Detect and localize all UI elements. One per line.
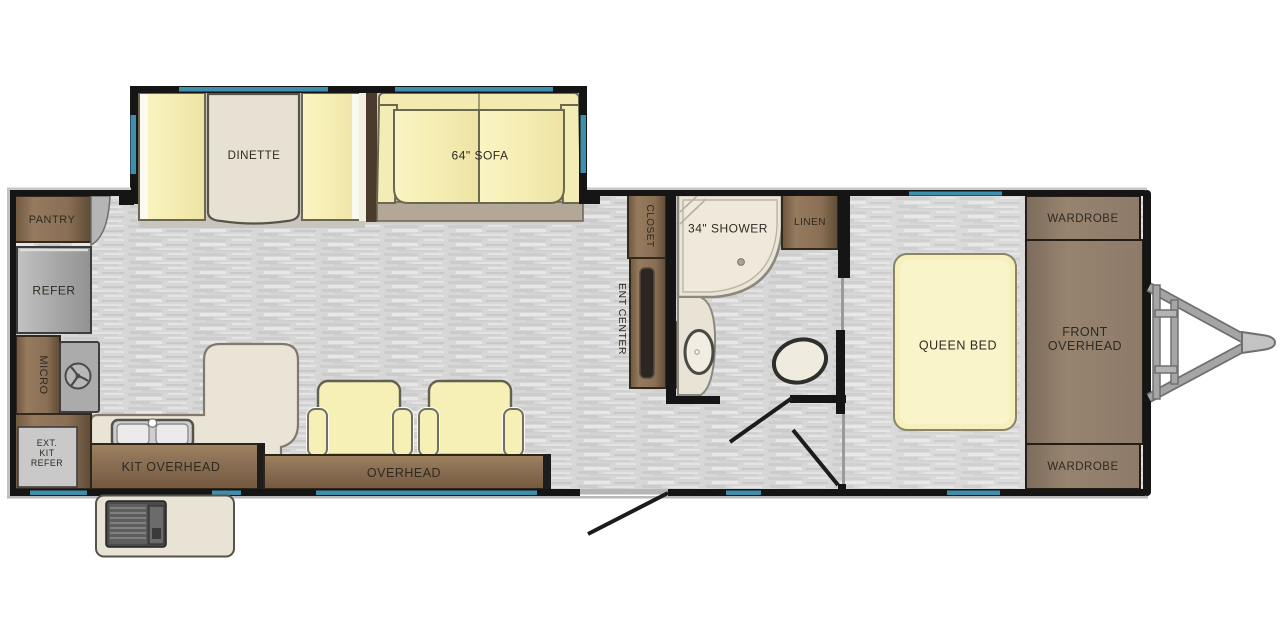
svg-text:34" SHOWER: 34" SHOWER [688, 222, 768, 236]
svg-text:DINETTE: DINETTE [228, 150, 281, 162]
svg-text:KIT: KIT [39, 448, 54, 458]
svg-text:WARDROBE: WARDROBE [1047, 461, 1118, 473]
svg-text:WARDROBE: WARDROBE [1047, 213, 1118, 225]
svg-text:MICRO: MICRO [37, 355, 49, 394]
svg-text:CLOSET: CLOSET [644, 204, 655, 247]
svg-text:KIT OVERHEAD: KIT OVERHEAD [122, 460, 221, 474]
svg-text:REFER: REFER [31, 458, 63, 468]
svg-text:REFER: REFER [32, 284, 75, 298]
svg-text:OVERHEAD: OVERHEAD [1048, 339, 1122, 353]
svg-text:EXT.: EXT. [37, 438, 58, 448]
svg-text:PANTRY: PANTRY [29, 214, 76, 226]
svg-text:ENT CENTER: ENT CENTER [616, 283, 628, 355]
svg-text:FRONT: FRONT [1062, 325, 1108, 339]
svg-text:QUEEN BED: QUEEN BED [919, 339, 997, 353]
svg-text:OVERHEAD: OVERHEAD [367, 466, 441, 480]
svg-text:LINEN: LINEN [794, 217, 826, 228]
svg-text:64" SOFA: 64" SOFA [452, 149, 509, 163]
